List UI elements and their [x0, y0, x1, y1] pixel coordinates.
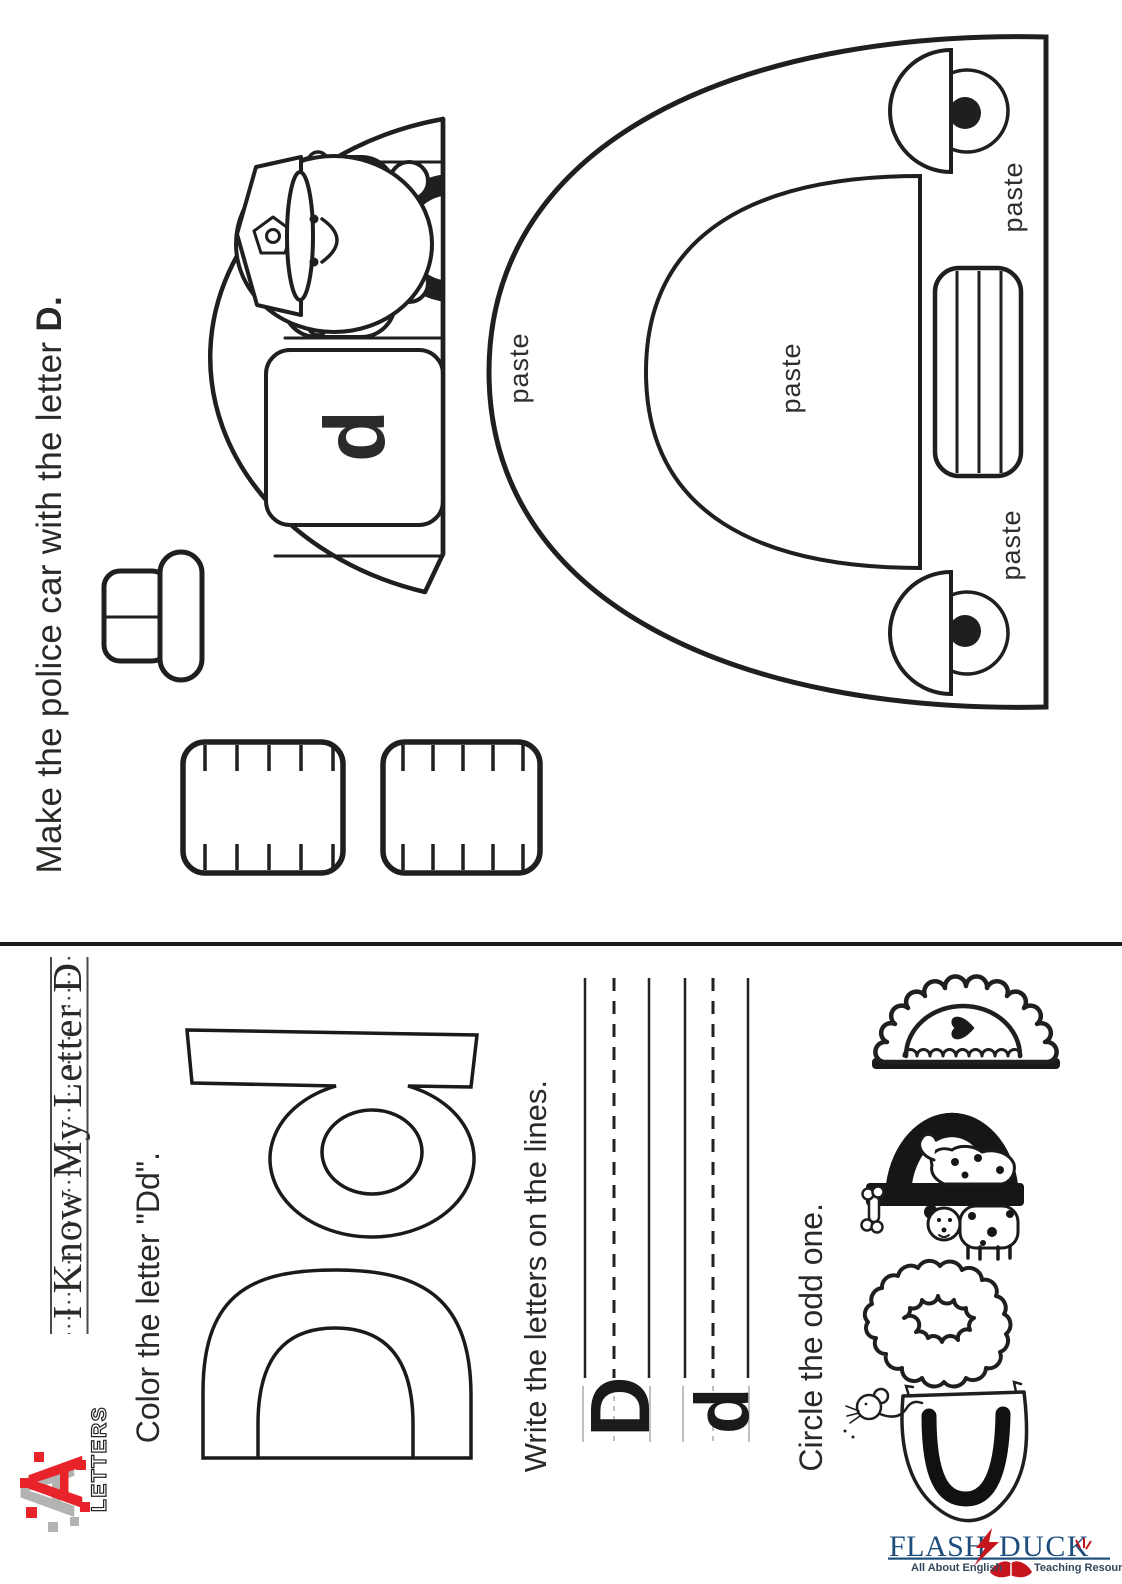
worksheet-artwork: d [0, 0, 1122, 1584]
wheel-cutout-1 [183, 742, 343, 873]
writing-lines-lower: d [680, 978, 765, 1442]
instruction-write-letters: Write the letters on the lines. [518, 1080, 554, 1472]
top-sheet-title-letter: D. [30, 296, 69, 332]
outline-letter-d [187, 1030, 477, 1237]
paste-label: paste [776, 342, 806, 413]
worksheet-page: d [0, 0, 1122, 1584]
paste-label: paste [998, 161, 1028, 232]
paste-label: paste [996, 509, 1026, 580]
bottom-sheet-heading: I Know My Letter D [44, 962, 91, 1319]
sheet-divider [0, 942, 1122, 946]
flashduck-tagline-left: All About English [911, 1562, 1003, 1574]
instruction-color-letter: Color the letter "Dd". [130, 1152, 167, 1443]
outline-letter-D [203, 1270, 471, 1458]
cap-visor [287, 172, 313, 300]
bone-icon [862, 1187, 884, 1233]
top-sheet-title-regular: Make the police car with the letter [30, 332, 69, 874]
aletters-logo: A A LETTERS [3, 1406, 111, 1532]
odd-item-frilly-D [872, 976, 1060, 1069]
police-hat-cutout [104, 552, 202, 680]
writing-lines-upper: D [573, 978, 667, 1442]
flashduck-logo: FLASH DUCK All About English Teaching Re… [888, 1528, 1122, 1577]
sample-letter-d: d [680, 1388, 765, 1434]
car-grille [935, 268, 1021, 476]
car-body-letter-d: paste paste paste paste [489, 37, 1046, 708]
color-letters-Dd [187, 1030, 477, 1458]
odd-item-fluffy-D [865, 1261, 1011, 1387]
flashduck-tagline-right: Teaching Resources [1034, 1562, 1122, 1574]
wheel-cutout-2 [383, 742, 540, 873]
police-officer-cutout: d [210, 119, 515, 592]
sample-letter-D: D [573, 1376, 667, 1437]
flashduck-word-duck: DUCK [999, 1530, 1090, 1563]
door-letter-d: d [308, 410, 403, 462]
dog-head [928, 1208, 960, 1240]
odd-item-dalmatian-D [862, 1113, 1025, 1259]
instruction-circle-odd-one: Circle the odd one. [793, 1203, 830, 1472]
odd-item-letter-C [844, 1382, 1027, 1521]
paste-label: paste [504, 332, 534, 403]
aletters-word: LETTERS [88, 1406, 111, 1512]
top-sheet-title: Make the police car with the letter D. [30, 296, 70, 874]
flashduck-word-flash: FLASH [889, 1530, 987, 1563]
